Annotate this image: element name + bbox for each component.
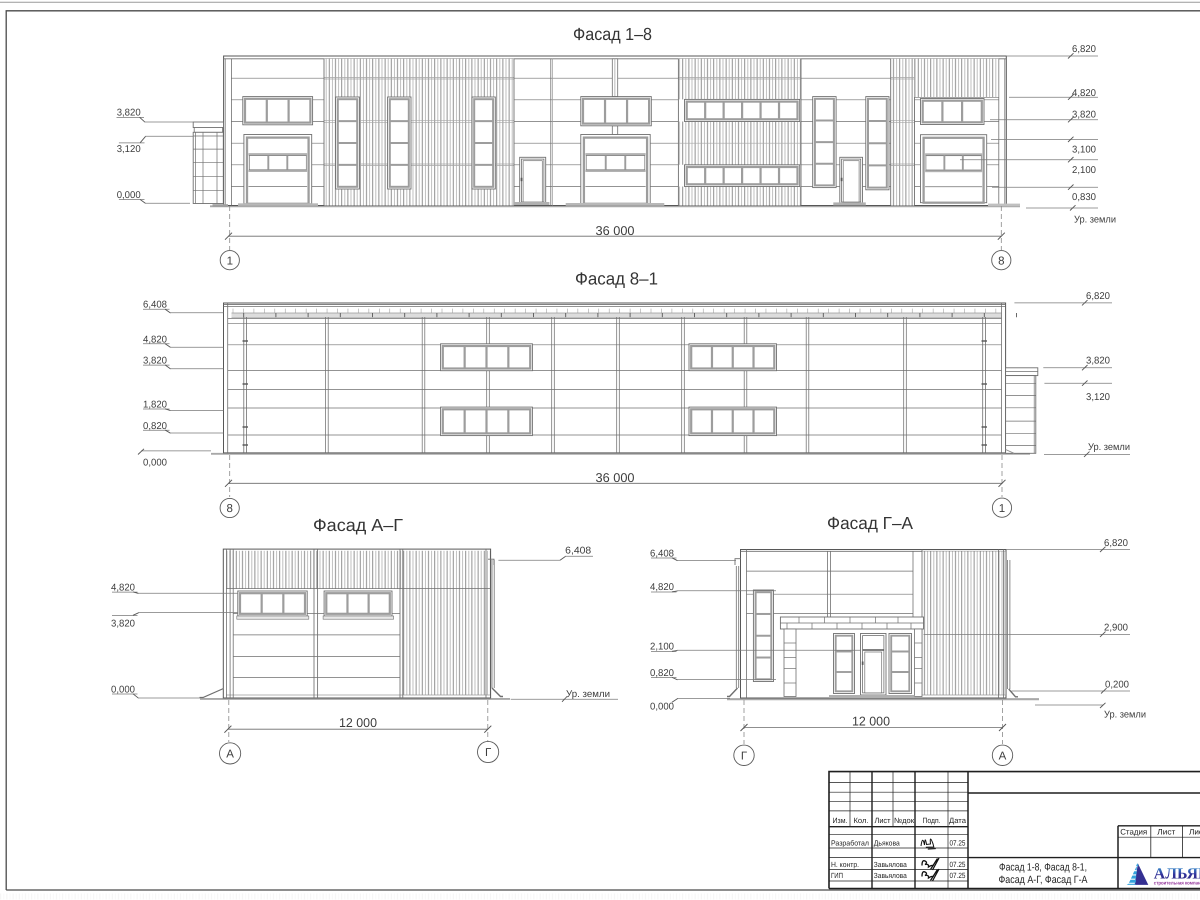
- svg-text:8: 8: [226, 503, 232, 515]
- svg-text:Фасад А–Г: Фасад А–Г: [313, 515, 404, 535]
- svg-text:Дьякова: Дьякова: [874, 838, 901, 847]
- svg-text:4,820: 4,820: [143, 334, 168, 345]
- svg-text:0,000: 0,000: [117, 190, 142, 201]
- svg-text:3,120: 3,120: [1086, 392, 1111, 403]
- svg-text:Ур. земли: Ур. земли: [566, 689, 610, 700]
- svg-text:4,820: 4,820: [650, 582, 675, 593]
- svg-text:4,820: 4,820: [111, 583, 136, 594]
- svg-text:07.25: 07.25: [950, 860, 966, 869]
- svg-text:0,000: 0,000: [143, 458, 168, 469]
- svg-text:4,820: 4,820: [1072, 88, 1097, 99]
- svg-text:3,100: 3,100: [1072, 145, 1097, 156]
- svg-text:Изм.: Изм.: [833, 816, 848, 825]
- svg-text:Стадия: Стадия: [1120, 828, 1147, 837]
- svg-text:0,820: 0,820: [650, 668, 675, 679]
- svg-text:0,830: 0,830: [1072, 192, 1097, 203]
- svg-text:№док: №док: [894, 816, 915, 825]
- svg-text:Фасад 1-8, Фасад 8-1,: Фасад 1-8, Фасад 8-1,: [999, 861, 1087, 873]
- svg-text:3,820: 3,820: [1072, 109, 1097, 120]
- svg-text:Лис: Лис: [1189, 828, 1200, 837]
- svg-text:2,100: 2,100: [1072, 165, 1097, 176]
- svg-text:12 000: 12 000: [852, 713, 890, 728]
- svg-text:Ур. земли: Ур. земли: [1074, 215, 1116, 226]
- svg-text:строительная компания: строительная компания: [1154, 882, 1200, 887]
- svg-text:6,408: 6,408: [565, 546, 592, 557]
- svg-text:Ур. земли: Ур. земли: [1088, 442, 1130, 453]
- svg-text:0,000: 0,000: [111, 685, 136, 696]
- svg-text:3,820: 3,820: [111, 619, 136, 630]
- svg-text:0,200: 0,200: [1105, 680, 1130, 691]
- svg-text:0,000: 0,000: [650, 702, 675, 713]
- svg-text:Н. контр.: Н. контр.: [831, 860, 859, 869]
- svg-text:Г: Г: [741, 750, 748, 762]
- svg-text:А: А: [226, 749, 234, 761]
- svg-text:6,408: 6,408: [143, 300, 168, 311]
- svg-text:1,820: 1,820: [143, 400, 168, 411]
- svg-text:Фасад А-Г, Фасад Г-А: Фасад А-Г, Фасад Г-А: [999, 874, 1089, 886]
- svg-text:Г: Г: [485, 747, 492, 759]
- svg-text:12 000: 12 000: [339, 715, 377, 730]
- svg-text:6,820: 6,820: [1104, 538, 1129, 549]
- svg-text:АЛЬЯНС: АЛЬЯНС: [1154, 865, 1200, 882]
- svg-text:Завьялова: Завьялова: [874, 871, 908, 880]
- svg-text:2,900: 2,900: [1104, 623, 1129, 634]
- svg-text:3,120: 3,120: [117, 144, 142, 155]
- svg-text:07.25: 07.25: [950, 838, 966, 847]
- svg-text:3,820: 3,820: [117, 108, 142, 119]
- svg-text:Завьялова: Завьялова: [874, 860, 908, 869]
- svg-text:8: 8: [998, 255, 1004, 267]
- svg-text:Подп.: Подп.: [923, 816, 941, 825]
- svg-text:2,100: 2,100: [650, 642, 675, 653]
- svg-text:А: А: [999, 750, 1007, 762]
- svg-text:1: 1: [227, 255, 233, 267]
- svg-text:3,820: 3,820: [143, 356, 168, 367]
- svg-text:Фасад 8–1: Фасад 8–1: [575, 269, 658, 289]
- svg-text:ГИП: ГИП: [831, 871, 843, 880]
- svg-text:36 000: 36 000: [596, 223, 635, 238]
- svg-text:36 000: 36 000: [596, 470, 635, 485]
- svg-text:6,408: 6,408: [650, 548, 675, 559]
- svg-text:07.25: 07.25: [950, 871, 966, 880]
- svg-text:1: 1: [999, 503, 1005, 515]
- svg-text:Фасад Г–А: Фасад Г–А: [827, 513, 913, 533]
- svg-text:0,820: 0,820: [143, 421, 168, 432]
- svg-text:Лист: Лист: [875, 816, 891, 825]
- svg-text:Дата: Дата: [949, 816, 967, 825]
- svg-text:6,820: 6,820: [1072, 44, 1097, 55]
- svg-text:Кол.: Кол.: [854, 816, 869, 825]
- svg-text:Ур. земли: Ур. земли: [1104, 710, 1146, 721]
- svg-text:3,820: 3,820: [1086, 355, 1111, 366]
- svg-text:Лист: Лист: [1157, 828, 1175, 837]
- svg-text:6,820: 6,820: [1086, 291, 1111, 302]
- svg-text:Разработал: Разработал: [831, 838, 869, 847]
- svg-text:Фасад 1–8: Фасад 1–8: [573, 24, 652, 44]
